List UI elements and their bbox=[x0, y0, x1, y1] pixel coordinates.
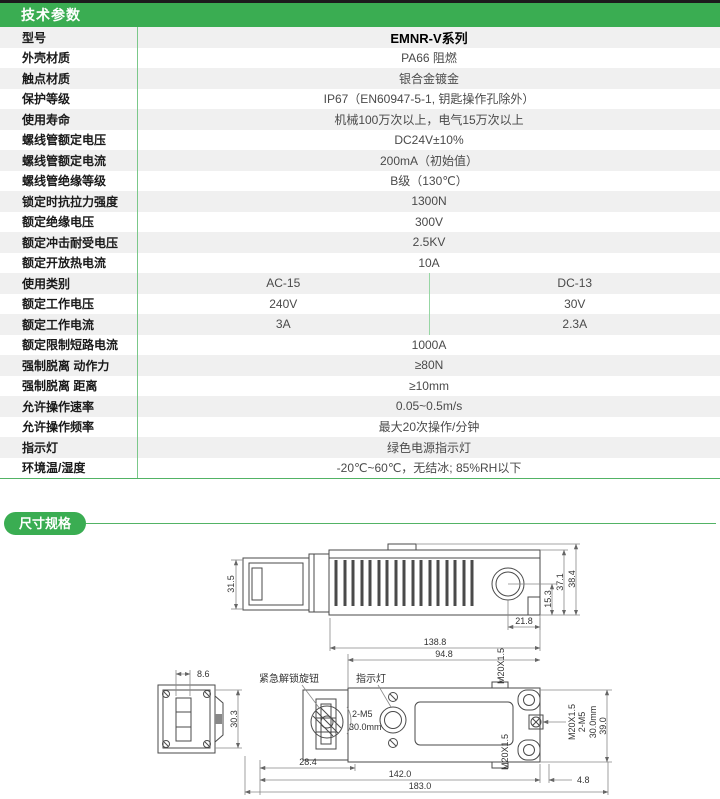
spec-value-ac: AC-15 bbox=[137, 273, 429, 294]
spec-value: EMNR-V系列 bbox=[137, 27, 720, 48]
spec-label: 外壳材质 bbox=[0, 48, 137, 69]
table-row: 强制脱离 距离≥10mm bbox=[0, 376, 720, 397]
spec-label: 保护等级 bbox=[0, 89, 137, 110]
table-row: 螺线管额定电流200mA（初始值） bbox=[0, 150, 720, 171]
table-row: 型号EMNR-V系列 bbox=[0, 27, 720, 48]
dim-hole-span: 94.8 bbox=[435, 649, 453, 659]
spec-label: 强制脱离 距离 bbox=[0, 376, 137, 397]
spec-value: 200mA（初始值） bbox=[137, 150, 720, 171]
dim-section-header: 尺寸规格 bbox=[4, 512, 716, 535]
table-row: 额定限制短路电流1000A bbox=[0, 335, 720, 356]
side-screw-depth-label: 30.0mm bbox=[588, 706, 598, 739]
table-row: 额定冲击耐受电压2.5KV bbox=[0, 232, 720, 253]
spec-label: 螺线管额定电压 bbox=[0, 130, 137, 151]
spec-value-dc: 30V bbox=[429, 294, 720, 315]
spec-label: 型号 bbox=[0, 27, 137, 48]
table-row: 螺线管额定电压DC24V±10% bbox=[0, 130, 720, 151]
dim-section-rule bbox=[86, 523, 716, 524]
spec-value: 10A bbox=[137, 253, 720, 274]
spec-value: 1000A bbox=[137, 335, 720, 356]
dim-head-offset: 28.4 bbox=[299, 757, 317, 767]
table-row: 锁定时抗拉力强度1300N bbox=[0, 191, 720, 212]
spec-value: 机械100万次以上，电气15万次以上 bbox=[137, 109, 720, 130]
spec-value: 银合金镀金 bbox=[137, 68, 720, 89]
spec-label: 允许操作频率 bbox=[0, 417, 137, 438]
spec-label: 螺线管绝缘等级 bbox=[0, 171, 137, 192]
table-row: 强制脱离 动作力≥80N bbox=[0, 355, 720, 376]
table-row: 使用寿命机械100万次以上，电气15万次以上 bbox=[0, 109, 720, 130]
dim-body-length: 138.8 bbox=[424, 637, 447, 647]
spec-label: 额定开放热电流 bbox=[0, 253, 137, 274]
spec-label: 允许操作速率 bbox=[0, 396, 137, 417]
table-row: 额定工作电流3A2.3A bbox=[0, 314, 720, 335]
side-view-ribs bbox=[336, 560, 472, 606]
table-row: 螺线管绝缘等级B级（130℃） bbox=[0, 171, 720, 192]
spec-label: 锁定时抗拉力强度 bbox=[0, 191, 137, 212]
spec-value: 1300N bbox=[137, 191, 720, 212]
front-view-end-cap bbox=[158, 685, 223, 753]
side-view-outline bbox=[243, 544, 540, 615]
spec-value-dc: DC-13 bbox=[429, 273, 720, 294]
spec-value: B级（130℃） bbox=[137, 171, 720, 192]
spec-value: 绿色电源指示灯 bbox=[137, 437, 720, 458]
table-row: 保护等级IP67（EN60947-5-1, 钥匙操作孔除外） bbox=[0, 89, 720, 110]
dim-head-height: 31.5 bbox=[226, 575, 236, 593]
table-row: 环境温/湿度-20℃~60℃，无结冰; 85%RH以下 bbox=[0, 458, 720, 479]
table-row: 指示灯绿色电源指示灯 bbox=[0, 437, 720, 458]
spec-value: 300V bbox=[137, 212, 720, 233]
table-row: 允许操作频率最大20次操作/分钟 bbox=[0, 417, 720, 438]
spec-label: 触点材质 bbox=[0, 68, 137, 89]
spec-value-ac: 240V bbox=[137, 294, 429, 315]
dim-total-height: 38.4 bbox=[567, 570, 577, 588]
side-screw-spec-label: 2-M5 bbox=[577, 712, 587, 733]
spec-label: 强制脱离 动作力 bbox=[0, 355, 137, 376]
tech-section-title: 技术参数 bbox=[21, 7, 81, 23]
tech-section-header: 技术参数 bbox=[0, 3, 720, 27]
gland-top-label: M20X1.5 bbox=[496, 648, 506, 684]
spec-value: 最大20次操作/分钟 bbox=[137, 417, 720, 438]
dim-circle-offset: 21.8 bbox=[515, 616, 533, 626]
dim-section-title: 尺寸规格 bbox=[4, 512, 86, 535]
spec-label: 额定限制短路电流 bbox=[0, 335, 137, 356]
side-view-dim-labels: 31.5 15.3 37.1 38.4 21.8 bbox=[226, 570, 577, 626]
screw-spec-label: 2-M5 bbox=[352, 709, 373, 719]
led-label: 指示灯 bbox=[356, 672, 386, 685]
spec-label: 额定绝缘电压 bbox=[0, 212, 137, 233]
spec-value: ≥10mm bbox=[137, 376, 720, 397]
dim-total-length: 183.0 bbox=[409, 781, 432, 791]
table-row: 额定开放热电流10A bbox=[0, 253, 720, 274]
table-row: 触点材质银合金镀金 bbox=[0, 68, 720, 89]
spec-value: PA66 阻燃 bbox=[137, 48, 720, 69]
dim-mount-span: 142.0 bbox=[389, 769, 412, 779]
spec-label: 额定冲击耐受电压 bbox=[0, 232, 137, 253]
spec-label: 螺线管额定电流 bbox=[0, 150, 137, 171]
screw-depth-label: 30.0mm bbox=[349, 722, 382, 732]
spec-value: DC24V±10% bbox=[137, 130, 720, 151]
dim-end-offset: 4.8 bbox=[577, 775, 590, 785]
spec-label: 额定工作电流 bbox=[0, 314, 137, 335]
table-row: 外壳材质PA66 阻燃 bbox=[0, 48, 720, 69]
spec-value: 0.05~0.5m/s bbox=[137, 396, 720, 417]
dim-body-height-front: 39.0 bbox=[598, 717, 608, 735]
table-row: 额定工作电压240V30V bbox=[0, 294, 720, 315]
spec-value: IP67（EN60947-5-1, 钥匙操作孔除外） bbox=[137, 89, 720, 110]
spec-label: 环境温/湿度 bbox=[0, 458, 137, 479]
spec-value-dc: 2.3A bbox=[429, 314, 720, 335]
spec-table: 型号EMNR-V系列 外壳材质PA66 阻燃 触点材质银合金镀金 保护等级IP6… bbox=[0, 27, 720, 478]
spec-value-ac: 3A bbox=[137, 314, 429, 335]
dim-head-height-front: 30.3 bbox=[229, 710, 239, 728]
table-row: 允许操作速率0.05~0.5m/s bbox=[0, 396, 720, 417]
table-bottom-rule bbox=[0, 478, 720, 479]
gland-side-label: M20X1.5 bbox=[567, 704, 577, 740]
spec-value: 2.5KV bbox=[137, 232, 720, 253]
table-row: 使用类别AC-15DC-13 bbox=[0, 273, 720, 294]
gland-bottom-label: M20X1.5 bbox=[500, 734, 510, 770]
table-row: 额定绝缘电压300V bbox=[0, 212, 720, 233]
dim-slot-width: 8.6 bbox=[197, 669, 210, 679]
spec-value: -20℃~60℃，无结冰; 85%RH以下 bbox=[137, 458, 720, 479]
knob-label: 紧急解锁旋钮 bbox=[259, 672, 319, 685]
spec-label: 额定工作电压 bbox=[0, 294, 137, 315]
spec-label: 使用类别 bbox=[0, 273, 137, 294]
spec-label: 使用寿命 bbox=[0, 109, 137, 130]
dim-center-to-bottom: 15.3 bbox=[543, 590, 553, 608]
dimension-drawing: 31.5 15.3 37.1 38.4 21.8 bbox=[0, 538, 720, 799]
spec-value: ≥80N bbox=[137, 355, 720, 376]
spec-label: 指示灯 bbox=[0, 437, 137, 458]
dim-body-height: 37.1 bbox=[555, 573, 565, 591]
